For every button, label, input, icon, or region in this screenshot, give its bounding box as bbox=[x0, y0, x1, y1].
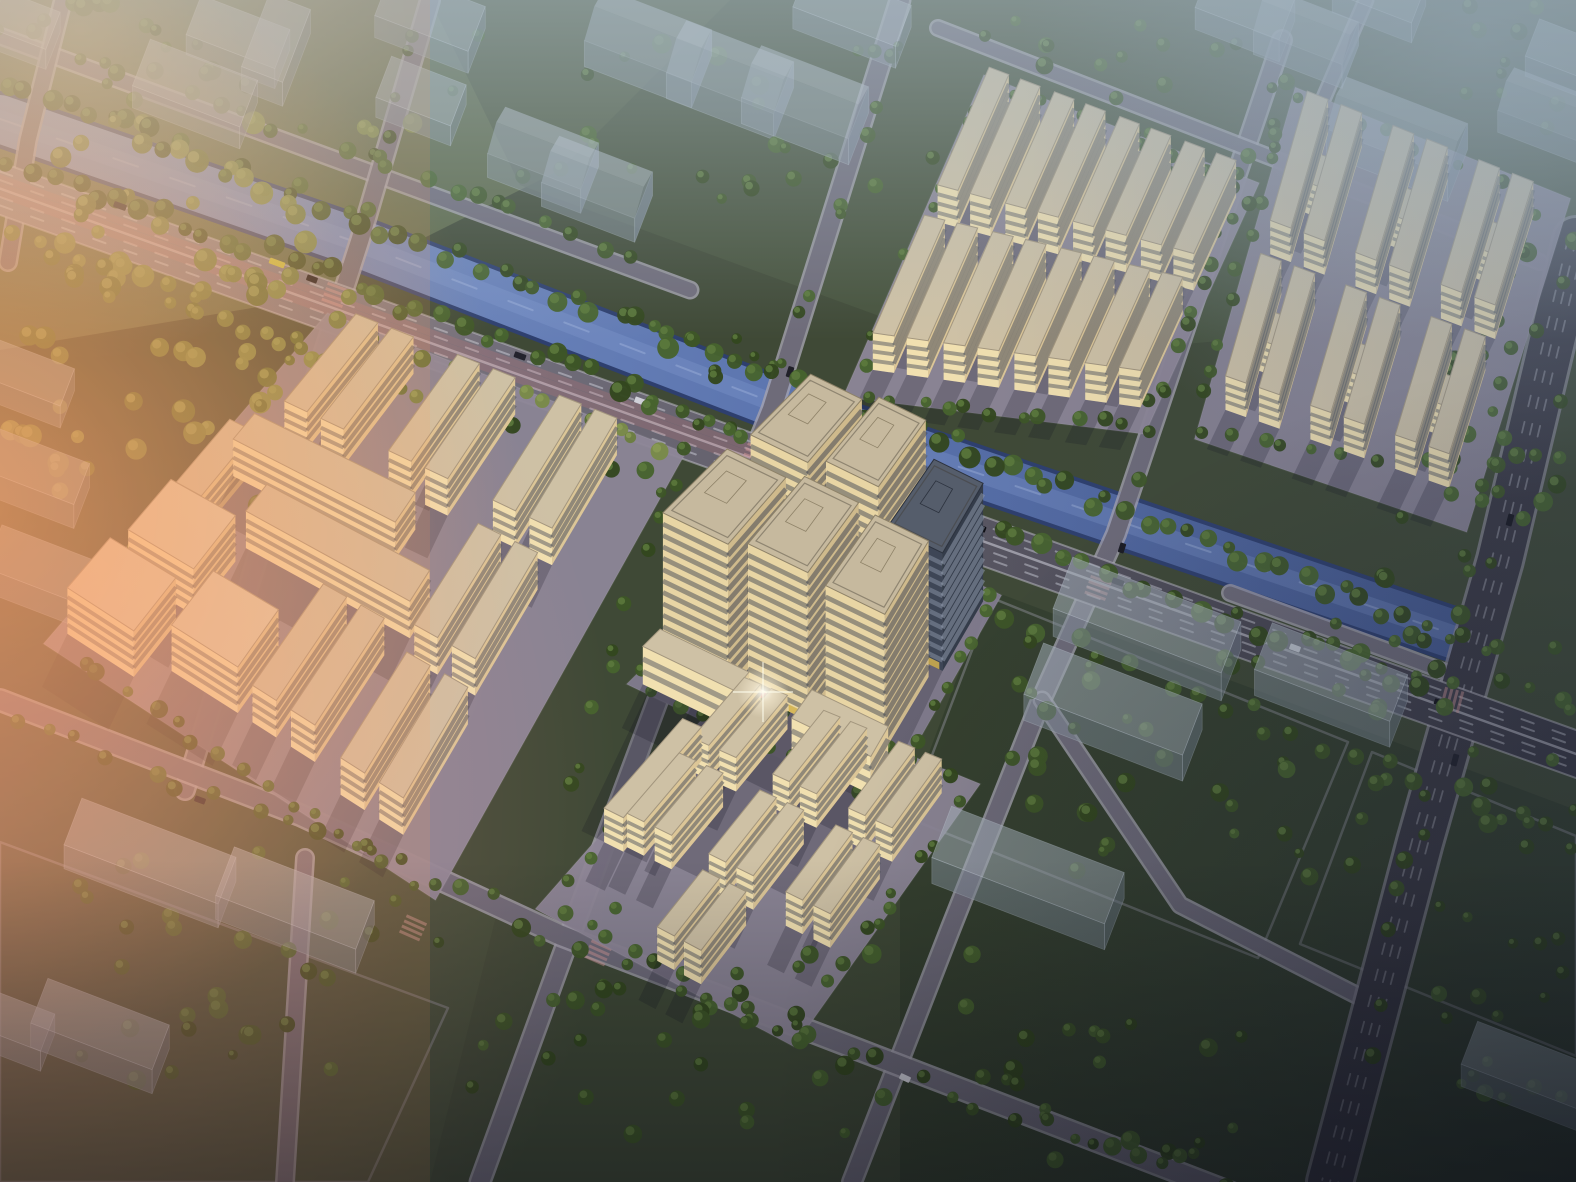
aerial-render bbox=[0, 0, 1576, 1182]
render-stage bbox=[0, 0, 1576, 1182]
aerial-render-figure bbox=[0, 0, 1576, 1182]
atmosphere-layer bbox=[0, 0, 1576, 1182]
vignette-corner bbox=[0, 0, 1576, 1182]
